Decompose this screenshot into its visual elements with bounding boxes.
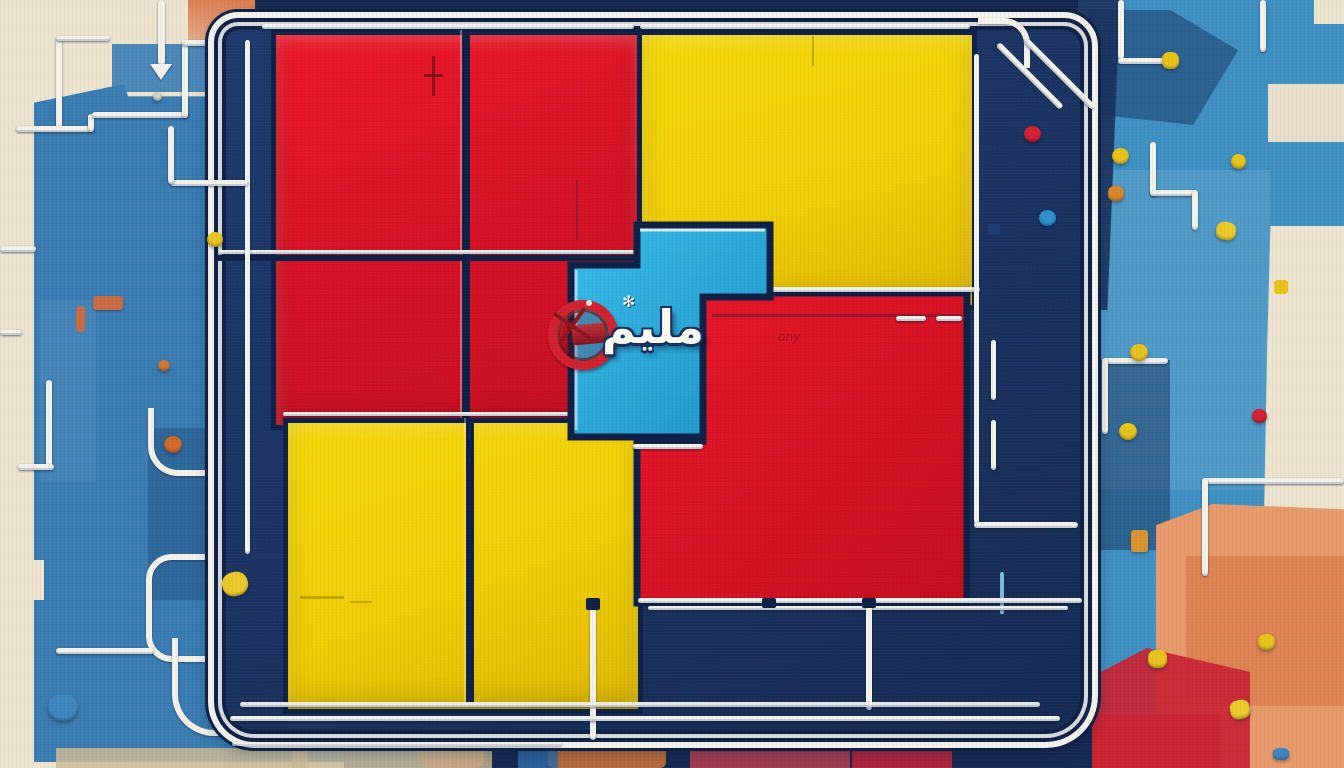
dot-yellow-right-4: [1130, 344, 1148, 361]
pipe-right-band-hdash-2: [936, 316, 962, 321]
pipe-bottom-frame-2: [230, 716, 1060, 721]
pipe-bottom-interior-2: [648, 606, 1068, 610]
pipe-right-bg-n-vertical: [1102, 358, 1108, 434]
pipe-right-band-elbow: [974, 522, 1078, 528]
drip-yellow-top: [812, 36, 814, 66]
pipe-right-band-dash-2: [991, 420, 996, 470]
dot-blue-rightband: [1039, 210, 1056, 226]
pipe-right-bg-corner-vertical: [1202, 478, 1208, 576]
artwork-canvas: مليم ✻ ony: [0, 0, 1344, 768]
dot-yellow-right-1: [1112, 148, 1129, 164]
pipe-right-bg-s-down: [1192, 190, 1198, 230]
pipe-left-band-vertical: [245, 40, 250, 554]
square-orange-right: [1131, 530, 1148, 552]
bg-beige-strip-bottom-left: [56, 748, 308, 768]
block-yellow-divider-vertical: [466, 418, 474, 704]
pipe-left-zig-low: [16, 126, 94, 132]
dot-orange-left-2: [158, 360, 170, 371]
pipe-right-bg-s-horizontal: [1150, 190, 1198, 196]
pipe-edge-stub-1: [0, 246, 36, 252]
pipe-bottom-frame-1: [240, 702, 1040, 707]
glyph-text: مليم: [592, 302, 714, 356]
bg-cream-right-col-upper: [1268, 84, 1344, 142]
pipe-joint-2: [762, 598, 776, 608]
drip-cyan-edge: [576, 180, 578, 240]
arrow-drip-dot: [153, 92, 162, 101]
scratch-cross-horizontal: [424, 74, 443, 77]
pipe-joint-1: [586, 598, 600, 610]
blob-blue-br: [1273, 748, 1289, 760]
pipe-bottom-interior-1: [638, 598, 1082, 603]
sparkle-dot: [586, 300, 592, 306]
dot-red-rightband: [1024, 126, 1041, 142]
pipe-right-bg-vertical-1: [1118, 0, 1124, 60]
bg-cream-right-corner: [1314, 0, 1344, 24]
dot-yellow-leftband: [207, 232, 223, 247]
pipe-right-band-dash-1: [991, 340, 996, 400]
block-red-divider-vertical: [462, 30, 470, 420]
pipe-above-red-block: [262, 24, 634, 29]
pipe-left-zig-high: [92, 112, 188, 118]
brick-orange-left: [93, 296, 123, 310]
pipe-right-band-vertical: [974, 54, 979, 524]
pipe-right-bg-vertical-2: [1260, 0, 1266, 52]
scratch-yellow-1: [300, 596, 344, 599]
square-navy-rightband: [988, 224, 1000, 235]
pipe-right-bg-corner-horizontal: [1202, 478, 1344, 484]
dot-yellow-right-2: [1231, 154, 1246, 169]
pipe-above-yellow-block: [640, 24, 970, 29]
pipe-left-elbow-vertical: [182, 44, 188, 118]
pipe-left-vertical-top: [56, 38, 62, 130]
pipe-joint-3: [862, 598, 876, 608]
block-yellow-bottom-left: [283, 418, 643, 714]
cap-yellow-pipe-right: [1162, 52, 1179, 69]
blob-yellow-br-1: [1148, 650, 1167, 668]
pipe-bottom-vertical-2: [866, 604, 872, 710]
scratch-yellow-2: [350, 601, 372, 603]
blob-orange-right: [1108, 186, 1124, 201]
pipe-right-bg-horizontal-1: [1118, 58, 1166, 64]
pipe-left-l-vertical: [46, 380, 52, 468]
pipe-loop-connector: [56, 648, 154, 654]
scribble-text: ony: [778, 330, 800, 344]
stick-orange-left: [76, 306, 85, 332]
pipe-right-bg-s-vertical: [1150, 142, 1156, 196]
pipe-left-l-horizontal: [18, 464, 54, 470]
pipe-left-band-connector: [170, 180, 248, 186]
dot-yellow-right-5: [1119, 423, 1137, 440]
dot-red-right: [1252, 409, 1267, 423]
pipe-arrow-shaft: [158, 0, 165, 66]
sparkle-icon: ✻: [622, 292, 635, 311]
blob-blue-bottom-left: [48, 694, 78, 721]
pipe-left-horizontal-top: [56, 36, 110, 41]
pipe-bottom-outer: [232, 742, 562, 746]
blob-yellow-br-2: [1258, 634, 1275, 650]
pipe-right-band-hdash-1: [896, 316, 926, 321]
arrow-head-icon: [150, 64, 172, 80]
dot-orange-left-1: [164, 436, 182, 453]
pipe-under-cyan: [633, 444, 703, 449]
pipe-top-right-corner: [978, 18, 1030, 68]
square-yellow-right: [1274, 280, 1288, 294]
pipe-left-band-connector-vert: [168, 126, 174, 184]
pipe-edge-stub-2: [0, 330, 22, 335]
